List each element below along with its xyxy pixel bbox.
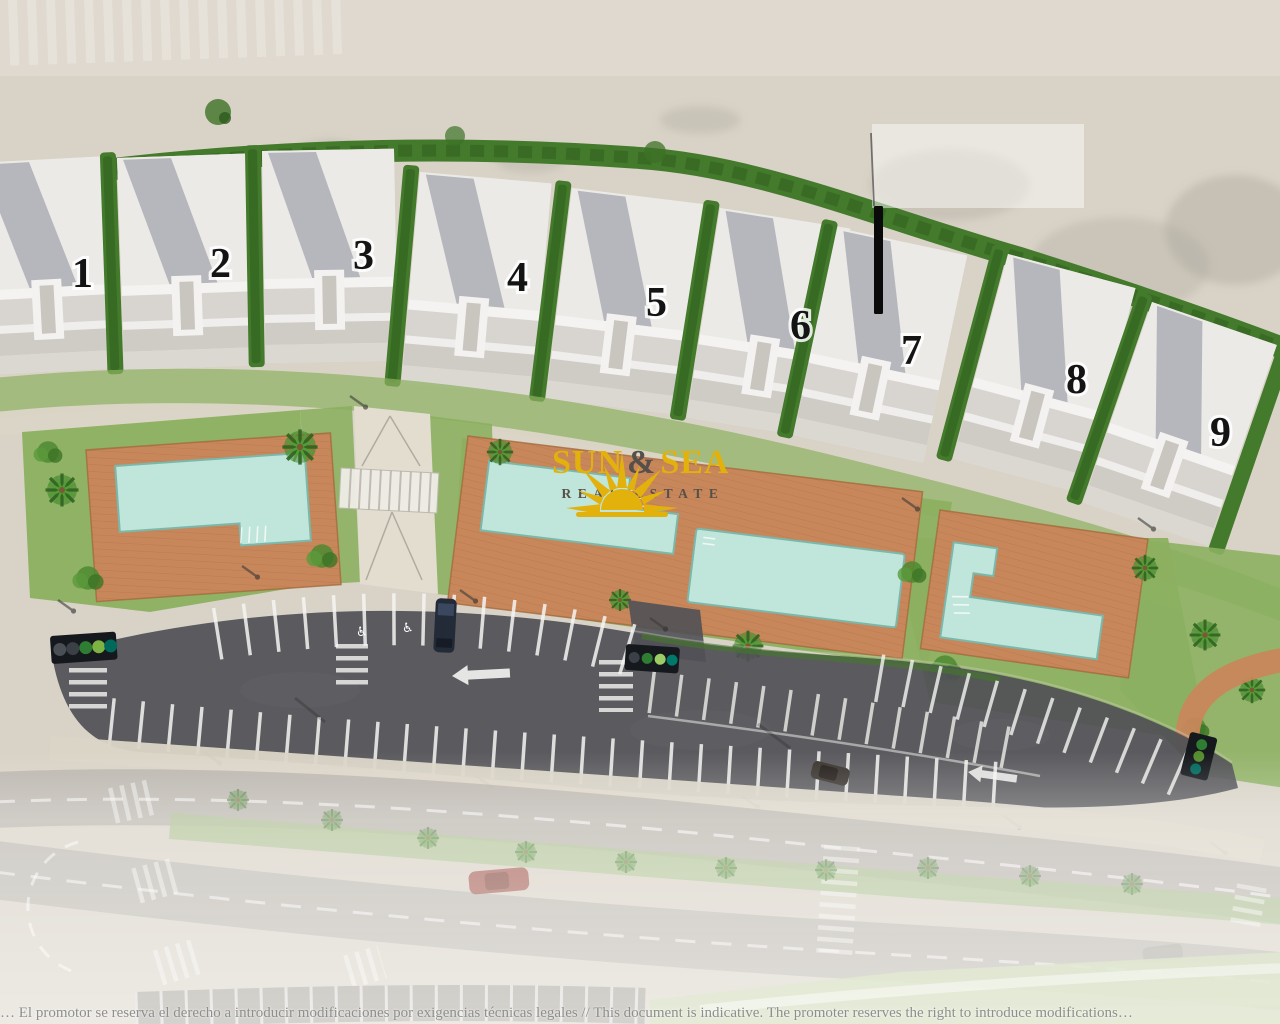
brand-logo: SUN&SEA REAL ESTATE (552, 444, 728, 502)
palm-tree-icon (282, 429, 317, 464)
building-label-3: 3 (353, 233, 374, 279)
building-label-4: 4 (507, 255, 528, 301)
sun-icon (552, 444, 692, 520)
building-label-2: 2 (210, 241, 231, 287)
palm-tree-icon (1132, 555, 1158, 581)
accessible-parking-icon: ♿ (402, 621, 414, 636)
beach-strip (0, 0, 1280, 76)
building-label-6: 6 (790, 303, 811, 349)
footer-disclaimer: … El promotor se reserva el derecho a in… (0, 1005, 1280, 1022)
parked-van (433, 598, 457, 653)
fade-overlay (0, 752, 1280, 1024)
pool-deck-3 (921, 510, 1148, 678)
palm-tree-icon (1190, 620, 1221, 651)
recycling-bins-1 (50, 632, 118, 665)
building-label-8: 8 (1066, 357, 1087, 403)
building-1 (0, 150, 118, 379)
building-3 (245, 143, 398, 368)
building-label-5: 5 (646, 280, 667, 326)
accessible-parking-icon: ♿ (356, 625, 368, 640)
building-label-7: 7 (901, 328, 922, 374)
blank-label-box (872, 124, 1084, 208)
building-label-1: 1 (72, 251, 93, 297)
palm-tree-icon (46, 474, 79, 507)
recycling-bins-2 (624, 644, 680, 674)
palm-tree-icon (487, 439, 513, 465)
site-plan-rendering: ♿ ♿ (0, 0, 1280, 1024)
pergola (339, 468, 439, 513)
marker-bar (874, 206, 883, 314)
palm-tree-icon (609, 589, 631, 611)
building-label-9: 9 (1210, 410, 1231, 456)
